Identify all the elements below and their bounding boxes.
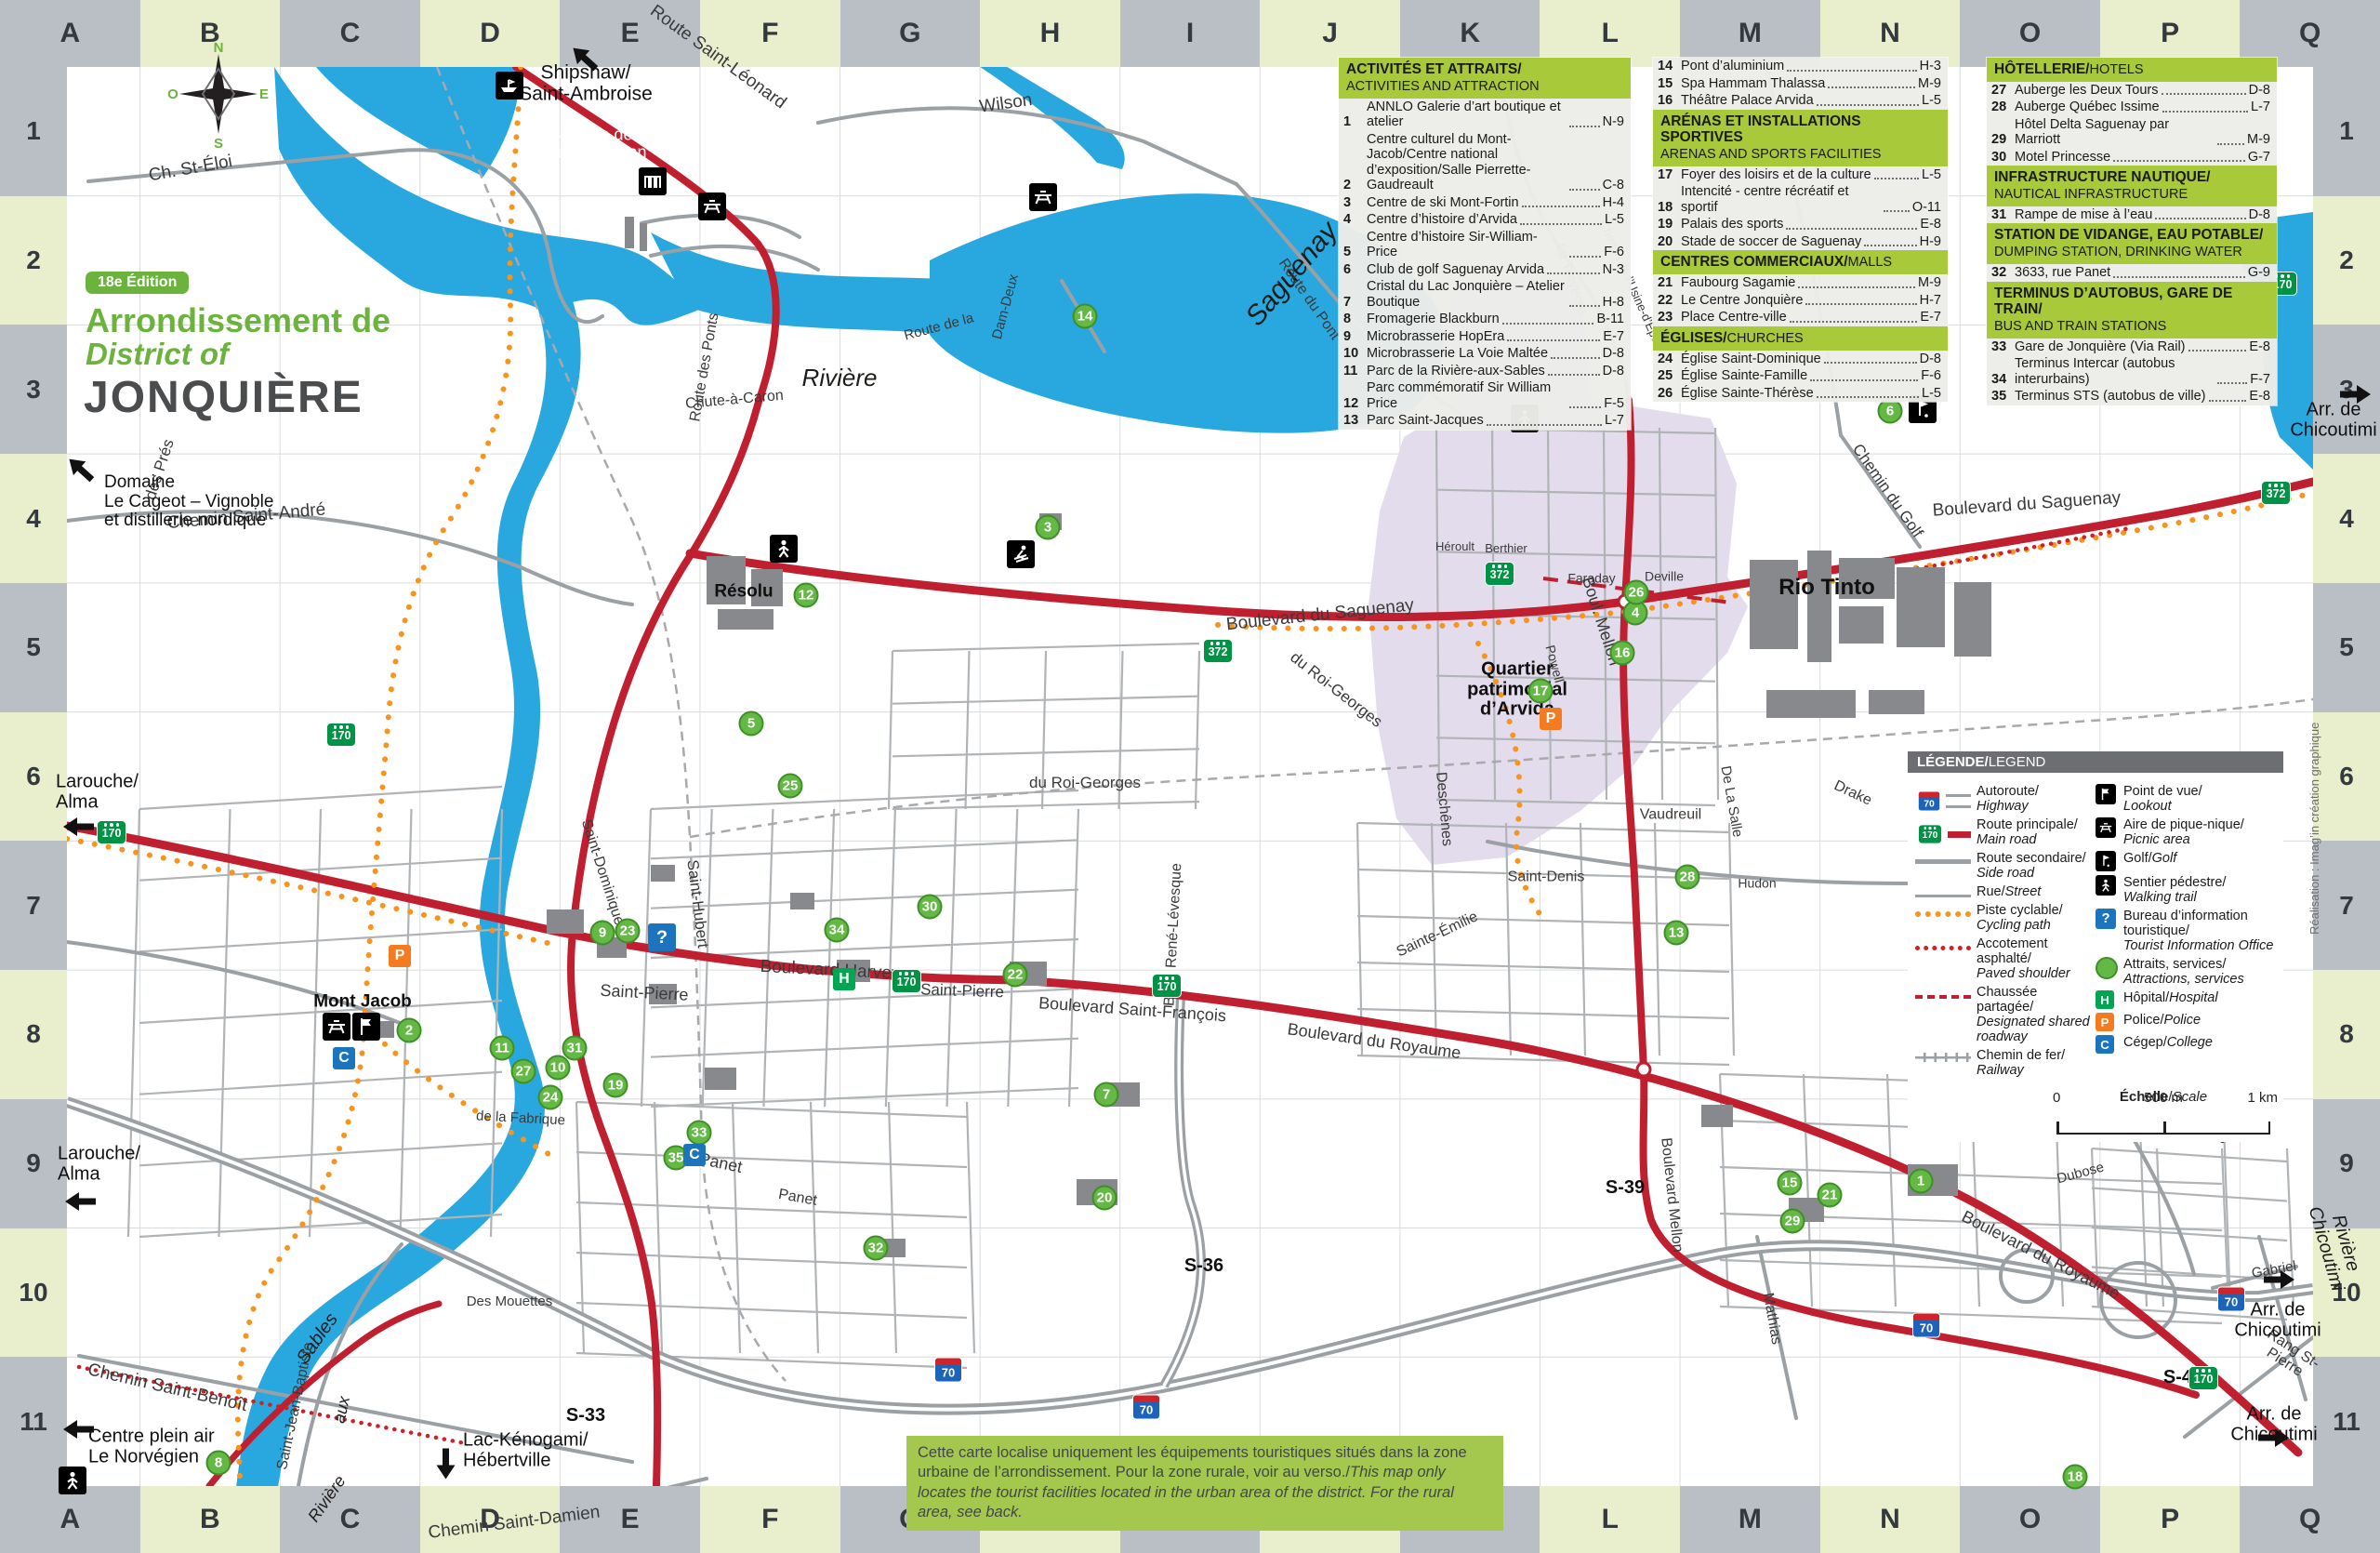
grid-row-label-left: 5: [0, 583, 67, 712]
tourist-info-icon: ?: [648, 923, 676, 951]
map-marker: 13: [1664, 921, 1689, 946]
picnic-icon: [2096, 817, 2116, 838]
route-372-shield: 372: [1485, 562, 1514, 586]
directory-item: 13Parc Saint-JacquesL-7: [1339, 412, 1631, 430]
route-170-shield: 170: [326, 723, 356, 747]
legend-row: 70Autoroute/Highway: [1915, 784, 2096, 814]
grid-col-label-top: I: [1120, 0, 1261, 67]
map-label: Héroult: [1435, 540, 1474, 553]
directory-item: 12Parc commémoratif Sir William PriceF-5: [1339, 379, 1631, 412]
directory-item: 9Microbrasserie HopEraE-7: [1339, 328, 1631, 346]
directory-item: 34Terminus Intercar (autobus interurbain…: [1987, 355, 2277, 388]
autoroute-70-shield: 70: [1912, 1313, 1940, 1338]
directory-section-header: ACTIVITÉS ET ATTRAITS/ACTIVITIES AND ATT…: [1339, 58, 1631, 99]
legend-row: Aire de pique-nique/Picnic area: [2096, 817, 2276, 847]
grid-col-label-bottom: F: [700, 1486, 840, 1553]
grid-row-label-right: 2: [2313, 196, 2380, 325]
legend-row: Chemin de fer/Railway: [1915, 1048, 2096, 1078]
title-line-fr: Arrondissement de: [86, 301, 390, 340]
directory-item: 323633, rue PanetG-9: [1987, 264, 2277, 282]
map-label: Larouche/Alma: [58, 1144, 140, 1184]
route-372-shield: 372: [1203, 639, 1233, 663]
grid-col-label-bottom: N: [1820, 1486, 1961, 1553]
walk-icon: [59, 1467, 86, 1494]
map-label: S-33: [566, 1406, 605, 1427]
map-label: du Roi-Georges: [1029, 775, 1141, 791]
grid-row-label-left: 11: [0, 1357, 67, 1486]
legend-header-en: LEGEND: [1989, 754, 2046, 770]
grid-col-label-bottom: P: [2100, 1486, 2241, 1553]
scale-zero: 0: [2053, 1090, 2060, 1106]
directory-item: 33Gare de Jonquière (Via Rail)E-8: [1987, 338, 2277, 356]
map-marker: 24: [538, 1085, 563, 1110]
map-label: Des Mouettes: [467, 1294, 553, 1309]
direction-arrow: [431, 1449, 456, 1480]
direction-arrow: [2264, 1269, 2295, 1294]
route-170-shield: 170: [2188, 1366, 2218, 1390]
credit-text: Réalisation : Imag’in création graphique: [2307, 723, 2321, 935]
map-label: Faraday: [1567, 571, 1615, 585]
directory-item: 35Terminus STS (autobus de ville)E-8: [1987, 388, 2277, 405]
map-marker: 21: [1818, 1183, 1843, 1208]
legend-row: Route secondaire/Side road: [1915, 851, 2096, 881]
legend-row: HHôpital/Hospital: [2096, 990, 2276, 1009]
map-label: Barrage deChute-à-Caron: [535, 126, 646, 163]
directory-item: 6Club de golf Saguenay ArvidaN-3: [1339, 261, 1631, 279]
legend-sample-fer: [1915, 1053, 1971, 1062]
map-label: Arr. deChicoutimi: [2234, 1300, 2320, 1340]
map-marker: 25: [778, 774, 803, 799]
direction-arrow: [2258, 1427, 2290, 1453]
ski-icon: [1007, 540, 1035, 568]
route-170-shield: 170: [892, 969, 921, 993]
directory-item: 26Église Sainte-ThérèseL-5: [1653, 385, 1948, 403]
map-label: Lac-Kénogami/Hébertville: [463, 1430, 588, 1470]
map-marker: 16: [1610, 641, 1635, 666]
legend-row: Sentier pédestre/Walking trail: [2096, 875, 2276, 905]
map-label: Rio Tinto: [1778, 576, 1875, 600]
scale-bar: Échelle/Scale 0 500 m 1 km: [2056, 1089, 2270, 1135]
directory-panel-col2: 14Pont d’aluminiumH-315Spa Hammam Thalas…: [1653, 58, 1948, 402]
grid-row-label-right: 6: [2313, 712, 2380, 842]
legend-panel: LÉGENDE/LEGEND 70Autoroute/Highway170Rou…: [1908, 751, 2283, 1142]
map-marker: 28: [1675, 865, 1700, 890]
legend-sample-rue: [1915, 889, 1971, 897]
grid-col-label-bottom: A: [0, 1486, 140, 1553]
directory-item: 25Église Sainte-FamilleF-6: [1653, 367, 1948, 385]
grid-col-label-bottom: L: [1540, 1486, 1680, 1553]
grid-row-label-left: 7: [0, 841, 67, 970]
legend-row: Point de vue/Lookout: [2096, 784, 2276, 814]
compass-n: N: [214, 41, 224, 56]
hospital-icon: H: [2096, 990, 2114, 1009]
legend-row: Rue/Street: [1915, 884, 2096, 899]
directory-item: 1ANNLO Galerie d’art boutique et atelier…: [1339, 99, 1631, 131]
map-label: Berthier: [1485, 542, 1527, 555]
directory-item: 7Cristal du Lac Jonquière – Atelier Bout…: [1339, 278, 1631, 311]
compass-o: O: [167, 86, 178, 102]
directory-item: 17Foyer des loisirs et de la cultureL-5: [1653, 166, 1948, 184]
map-label: Vaudreuil: [1640, 806, 1701, 822]
grid-col-label-bottom: M: [1680, 1486, 1820, 1553]
map-marker: 29: [1780, 1209, 1805, 1234]
map-marker: 30: [918, 895, 943, 920]
legend-header: LÉGENDE/LEGEND: [1908, 751, 2283, 773]
golf-icon: [2096, 851, 2116, 871]
picnic-icon: [698, 192, 726, 220]
tourist-info-icon: ?: [2096, 909, 2116, 929]
directory-section-header: STATION DE VIDANGE, EAU POTABLE/DUMPING …: [1987, 223, 2277, 264]
legend-sample-autoroute: 70: [1915, 789, 1971, 814]
map-page: N S O E 18e Édition Arrondissement de Di…: [0, 0, 2380, 1553]
grid-row-label-right: 5: [2313, 583, 2380, 712]
map-marker: 10: [546, 1055, 571, 1081]
grid-col-label-top: H: [980, 0, 1120, 67]
edition-badge: 18e Édition: [86, 272, 189, 294]
legend-sample-principale: 170: [1915, 822, 1971, 846]
autoroute-70-shield: 70: [2217, 1287, 2245, 1312]
map-marker: 26: [1624, 580, 1649, 605]
autoroute-70-shield: 70: [1918, 791, 1940, 812]
cegep-icon: C: [2096, 1035, 2114, 1054]
police-icon: P: [1540, 708, 1562, 730]
legend-row: CCégep/College: [2096, 1035, 2276, 1054]
legend-row: Attraits, services/Attractions, services: [2096, 957, 2276, 987]
directory-item: 21Faubourg SagamieM-9: [1653, 274, 1948, 292]
lookout-icon: [352, 1013, 380, 1041]
walk-icon: [2096, 875, 2116, 896]
grid-col-label-top: C: [280, 0, 420, 67]
map-label: Larouche/Alma: [56, 772, 139, 812]
map-marker: 12: [794, 583, 819, 608]
grid-row-label-right: 4: [2313, 454, 2380, 583]
map-marker: 7: [1094, 1082, 1119, 1108]
route-372-shield: 372: [2261, 481, 2291, 505]
map-label: Résolu: [714, 583, 773, 603]
grid-col-label-bottom: Q: [2240, 1486, 2380, 1553]
direction-arrow: [62, 1414, 94, 1440]
map-label: Rivière: [802, 365, 878, 391]
legend-line-samples: 70Autoroute/Highway170Route principale/M…: [1915, 780, 2096, 1082]
legend-row: 170Route principale/Main road: [1915, 817, 2096, 847]
directory-section-header: ÉGLISES/CHURCHES: [1653, 326, 1948, 351]
map-marker: 20: [1092, 1186, 1117, 1211]
map-marker: 8: [206, 1451, 231, 1476]
map-marker: 3: [1036, 515, 1061, 540]
walk-icon: [770, 535, 798, 563]
directory-section-header: ARÉNAS ET INSTALLATIONS SPORTIVESARENAS …: [1653, 110, 1948, 166]
direction-arrow: [2340, 384, 2372, 409]
grid-col-label-top: A: [0, 0, 140, 67]
picnic-icon: [323, 1013, 350, 1041]
legend-row: Piste cyclable/Cycling path: [1915, 903, 2096, 933]
directory-item: 19Palais des sportsE-8: [1653, 216, 1948, 233]
grid-col-label-bottom: O: [1960, 1486, 2100, 1553]
map-marker: 34: [825, 918, 850, 943]
directory-panel-col1: ACTIVITÉS ET ATTRAITS/ACTIVITIES AND ATT…: [1339, 58, 1631, 430]
directory-section-header: INFRASTRUCTURE NAUTIQUE/NAUTICAL INFRAST…: [1987, 166, 2277, 206]
grid-col-label-bottom: C: [280, 1486, 420, 1553]
cegep-icon: C: [333, 1047, 355, 1069]
directory-item: 16Théâtre Palace ArvidaL-5: [1653, 92, 1948, 110]
legend-row: PPolice/Police: [2096, 1013, 2276, 1031]
grid-row-label-left: 10: [0, 1228, 67, 1358]
legend-header-fr: LÉGENDE/: [1917, 754, 1989, 770]
grid-row-label-left: 4: [0, 454, 67, 583]
directory-item: 11Parc de la Rivière-aux-SablesD-8: [1339, 363, 1631, 380]
directory-item: 29Hôtel Delta Saguenay par MarriottM-9: [1987, 116, 2277, 149]
directory-item: 14Pont d’aluminiumH-3: [1653, 58, 1948, 75]
map-marker: 9: [590, 921, 615, 946]
grid-col-label-top: G: [840, 0, 981, 67]
legend-icon-samples: Point de vue/LookoutAire de pique-nique/…: [2096, 780, 2276, 1082]
directory-item: 4Centre d’histoire d’ArvidaL-5: [1339, 211, 1631, 229]
map-marker: 18: [2063, 1465, 2088, 1490]
grid-row-label-left: 2: [0, 196, 67, 325]
scale-mid: 500 m: [2144, 1090, 2183, 1106]
directory-item: 3Centre de ski Mont-FortinH-4: [1339, 194, 1631, 212]
map-label: Hudon: [1738, 876, 1776, 890]
map-label: Deville: [1645, 569, 1684, 583]
dam-icon: [639, 167, 667, 195]
directory-item: 5Centre d’histoire Sir-William-PriceF-6: [1339, 229, 1631, 261]
grid-row-label-right: 1: [2313, 67, 2380, 196]
grid-row-label-left: 8: [0, 970, 67, 1099]
boat-icon: [496, 72, 523, 100]
map-label: Saint-Denis: [1508, 869, 1585, 884]
compass-rose: N S O E: [167, 41, 270, 149]
direction-arrow: [64, 1187, 96, 1212]
map-marker: 19: [603, 1073, 628, 1098]
directory-item: 24Église Saint-DominiqueD-8: [1653, 351, 1948, 368]
lookout-icon: [2096, 784, 2116, 804]
map-label: DomaineLe Cageot – Vignobleet distilleri…: [104, 473, 273, 531]
grid-row-label-right: 7: [2313, 841, 2380, 970]
directory-item: 31Rampe de mise à l’eauD-8: [1987, 206, 2277, 224]
map-marker: 17: [1528, 679, 1554, 704]
map-marker: 6: [1878, 399, 1903, 424]
legend-sample-accotement: [1915, 941, 1971, 950]
directory-item: 10Microbrasserie La Voie MaltéeD-8: [1339, 345, 1631, 363]
map-marker: 27: [511, 1059, 536, 1084]
grid-col-label-top: D: [420, 0, 561, 67]
autoroute-70-shield: 70: [934, 1358, 962, 1383]
map-marker: 31: [562, 1036, 588, 1061]
directory-item: 15Spa Hammam ThalassaM-9: [1653, 75, 1948, 93]
legend-sample-partagee: [1915, 989, 1971, 999]
autoroute-70-shield: 70: [1132, 1395, 1160, 1420]
legend-row: ?Bureau d’information touristique/Touris…: [2096, 909, 2276, 953]
grid-row-label-left: 1: [0, 67, 67, 196]
police-icon: P: [2096, 1013, 2114, 1031]
legend-sample-cyclable: [1915, 908, 1971, 917]
directory-item: 22Le Centre JonquièreH-7: [1653, 292, 1948, 310]
direction-arrow: [62, 812, 94, 837]
police-icon: P: [389, 945, 411, 967]
title-line-en: District of: [86, 337, 229, 372]
cegep-icon: C: [683, 1144, 706, 1166]
scale-end: 1 km: [2247, 1090, 2278, 1106]
attraction-dot-icon: [2096, 957, 2118, 979]
map-note: Cette carte localise uniquement les équi…: [906, 1436, 1503, 1531]
grid-row-label-right: 8: [2313, 970, 2380, 1099]
map-marker: 5: [739, 711, 764, 737]
directory-section-header: CENTRES COMMERCIAUX/MALLS: [1653, 250, 1948, 274]
legend-sample-secondaire: [1915, 856, 1971, 864]
map-marker: 32: [864, 1236, 889, 1261]
map-label: Centre plein airLe Norvégien: [88, 1427, 215, 1467]
directory-item: 23Place Centre-villeE-7: [1653, 309, 1948, 326]
directory-item: 27Auberge les Deux ToursD-8: [1987, 82, 2277, 100]
legend-row: Accotement asphalté/Paved shoulder: [1915, 936, 2096, 981]
hospital-icon: H: [833, 968, 855, 990]
map-marker: 14: [1073, 304, 1098, 329]
compass-s: S: [214, 136, 223, 149]
map-marker: 23: [615, 919, 641, 944]
map-label: S-39: [1606, 1178, 1645, 1199]
map-label: Saint-Pierre: [920, 981, 1004, 1001]
directory-item: 8Fromagerie BlackburnB-11: [1339, 311, 1631, 328]
compass-e: E: [259, 86, 269, 102]
legend-row: Golf/Golf: [2096, 851, 2276, 871]
map-marker: 1: [1909, 1169, 1934, 1194]
picnic-icon: [1029, 183, 1057, 211]
map-marker: 2: [397, 1018, 422, 1043]
grid-col-label-bottom: B: [140, 1486, 281, 1553]
page-title: JONQUIÈRE: [84, 372, 364, 423]
directory-panel-col3: HÔTELLERIE/HOTELS27Auberge les Deux Tour…: [1987, 58, 2277, 405]
map-marker: 22: [1003, 962, 1028, 988]
map-marker: 11: [490, 1036, 515, 1061]
directory-item: 18Intencité - centre récréatif et sporti…: [1653, 183, 1948, 216]
map-marker: 33: [687, 1121, 712, 1146]
directory-item: 30Motel PrincesseG-7: [1987, 149, 2277, 166]
directory-item: 2Centre culturel du Mont-Jacob/Centre na…: [1339, 131, 1631, 194]
directory-section-header: TERMINUS D’AUTOBUS, GARE DE TRAIN/BUS AN…: [1987, 282, 2277, 338]
directory-section-header: HÔTELLERIE/HOTELS: [1987, 58, 2277, 82]
route-170-shield: 170: [97, 820, 126, 844]
grid-row-label-left: 3: [0, 325, 67, 454]
legend-row: Chaussée partagée/Designated shared road…: [1915, 985, 2096, 1044]
map-label: S-36: [1184, 1256, 1223, 1277]
map-marker: 15: [1778, 1171, 1803, 1196]
directory-item: 28Auberge Québec IssimeL-7: [1987, 99, 2277, 116]
map-label: Mont Jacob: [313, 993, 412, 1013]
route-170-shield: 170: [1918, 825, 1942, 844]
directory-item: 20Stade de soccer de SaguenayH-9: [1653, 233, 1948, 251]
route-170-shield: 170: [1152, 974, 1182, 998]
